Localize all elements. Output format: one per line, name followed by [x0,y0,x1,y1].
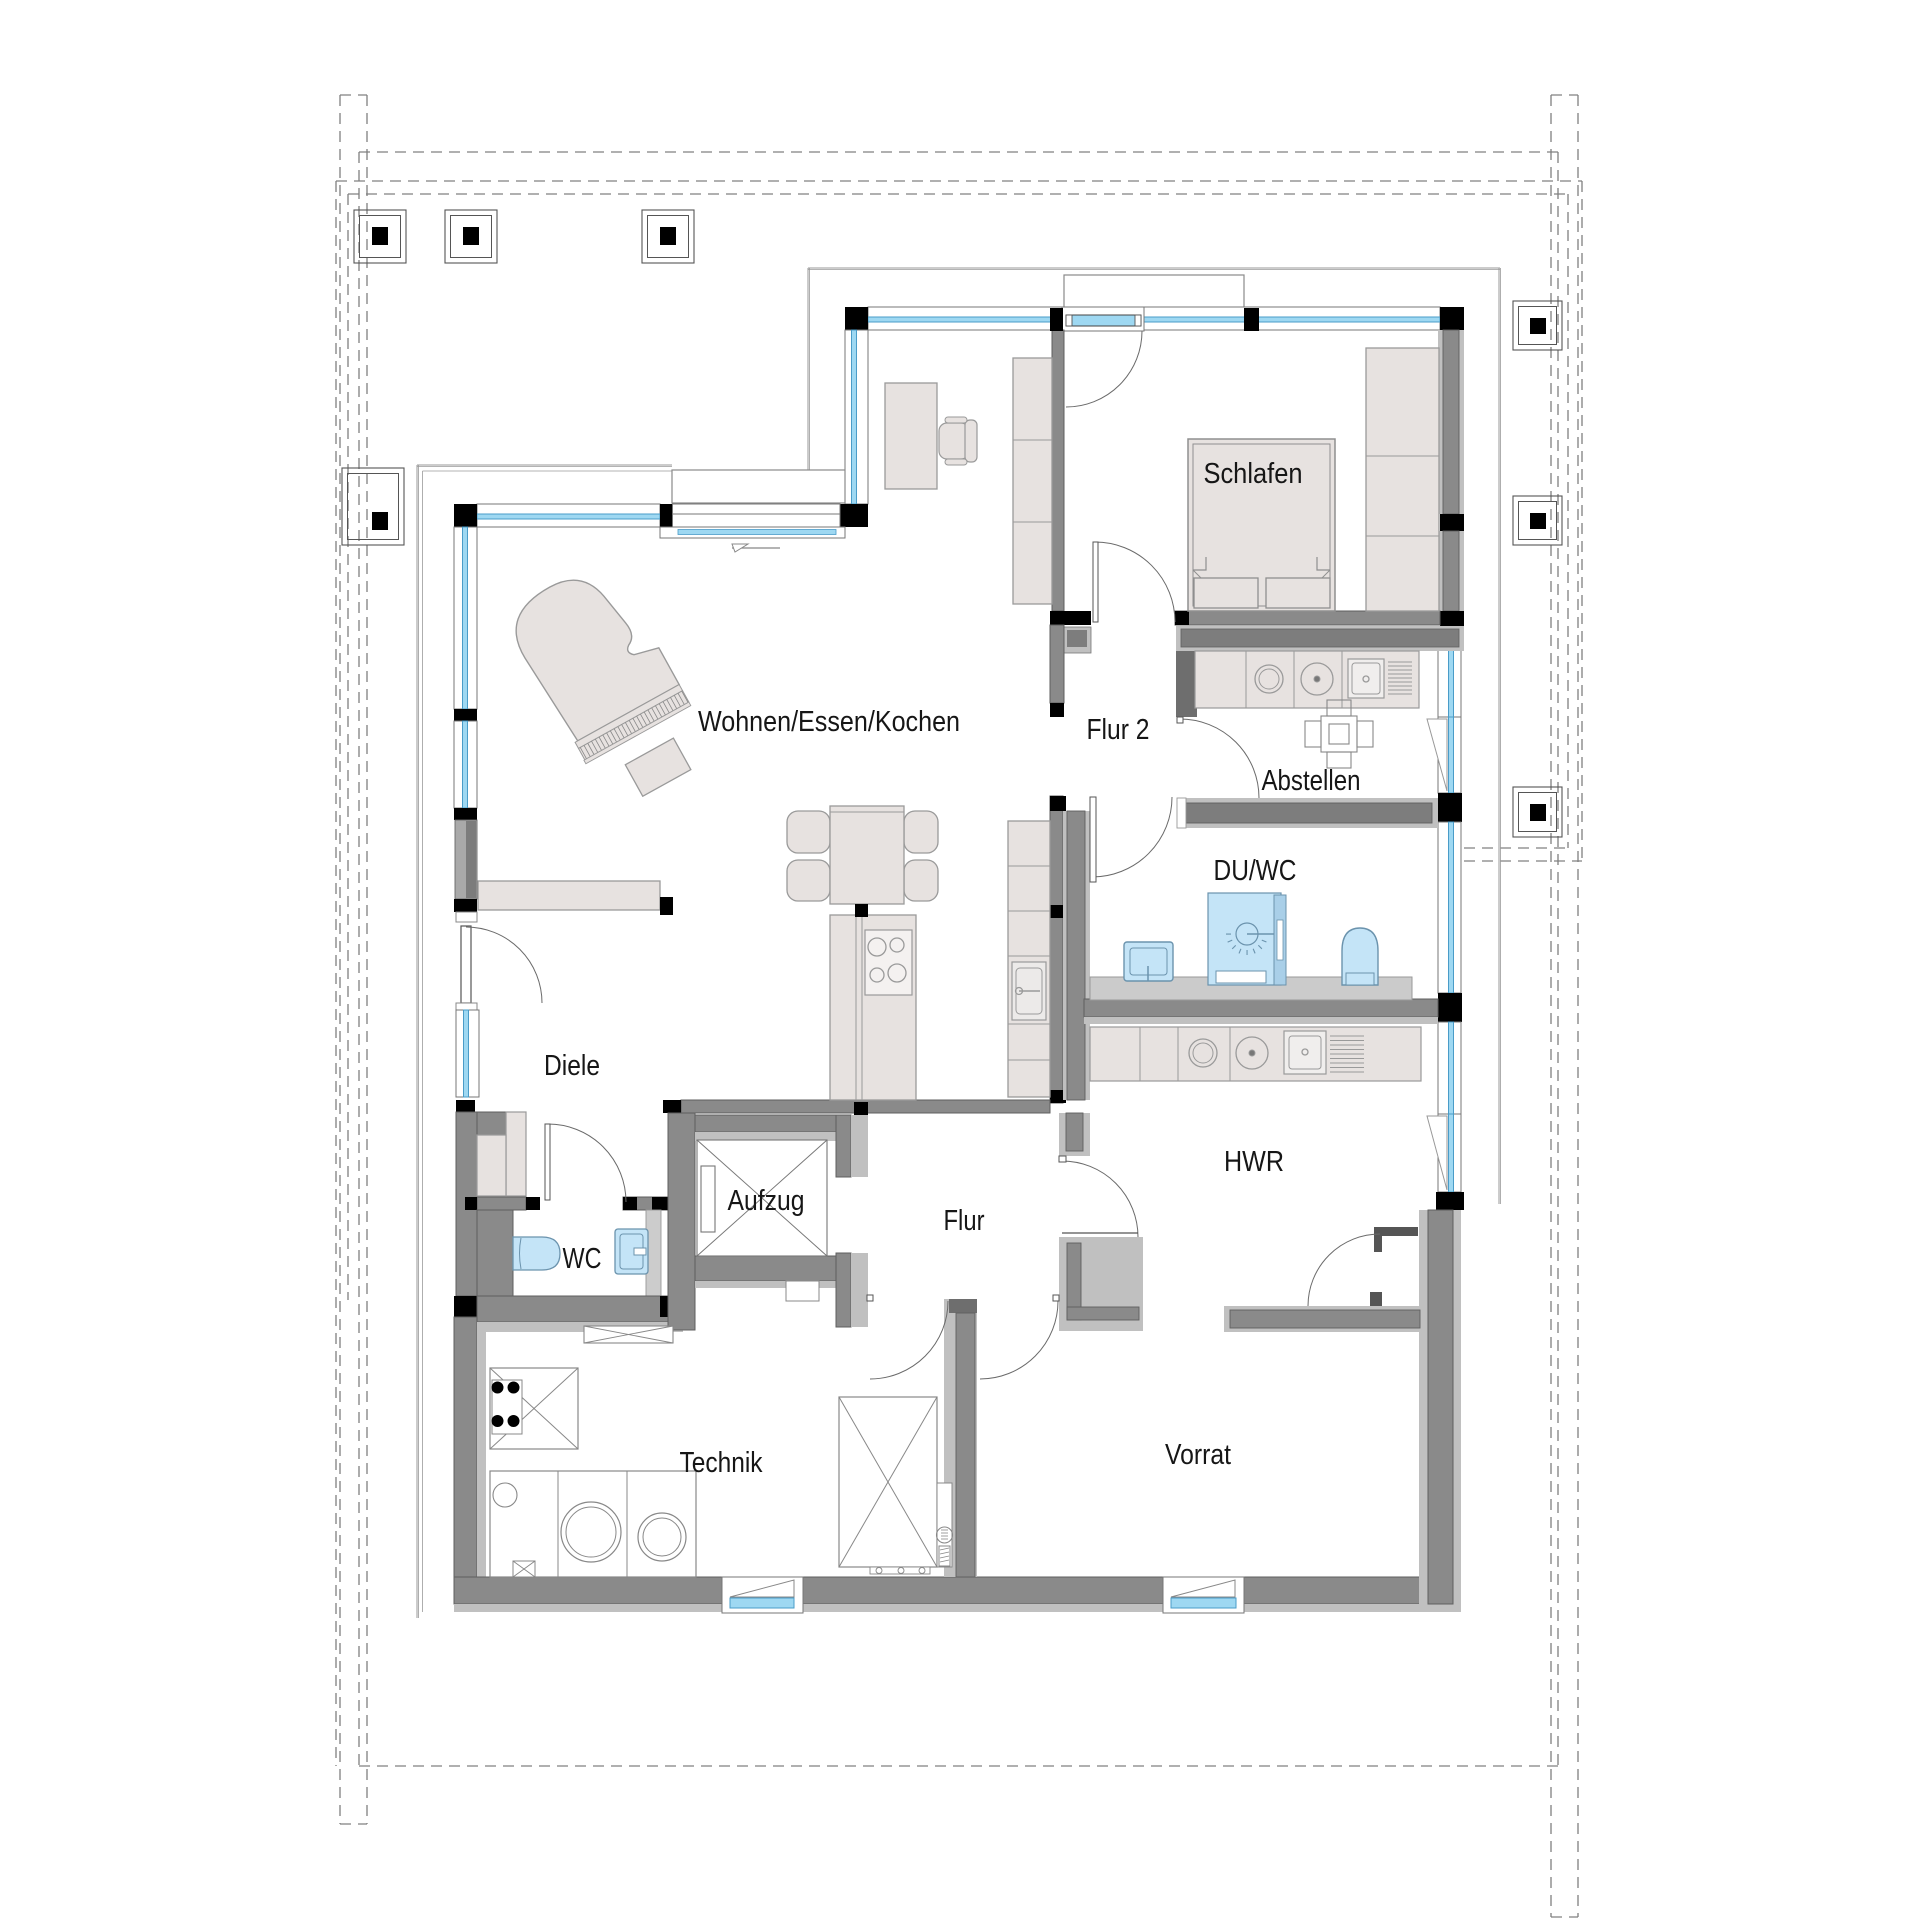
svg-text:Technik: Technik [680,1447,764,1479]
svg-text:WC: WC [563,1243,602,1275]
svg-text:Flur: Flur [944,1205,985,1237]
svg-text:Schlafen: Schlafen [1204,458,1303,490]
svg-text:Aufzug: Aufzug [728,1185,805,1217]
svg-text:Vorrat: Vorrat [1165,1439,1231,1471]
svg-text:Wohnen/Essen/Kochen: Wohnen/Essen/Kochen [698,706,960,738]
svg-text:Abstellen: Abstellen [1262,765,1361,797]
svg-text:Diele: Diele [544,1050,600,1082]
svg-text:DU/WC: DU/WC [1214,855,1297,887]
svg-text:HWR: HWR [1224,1146,1284,1178]
svg-text:Flur 2: Flur 2 [1087,714,1150,746]
